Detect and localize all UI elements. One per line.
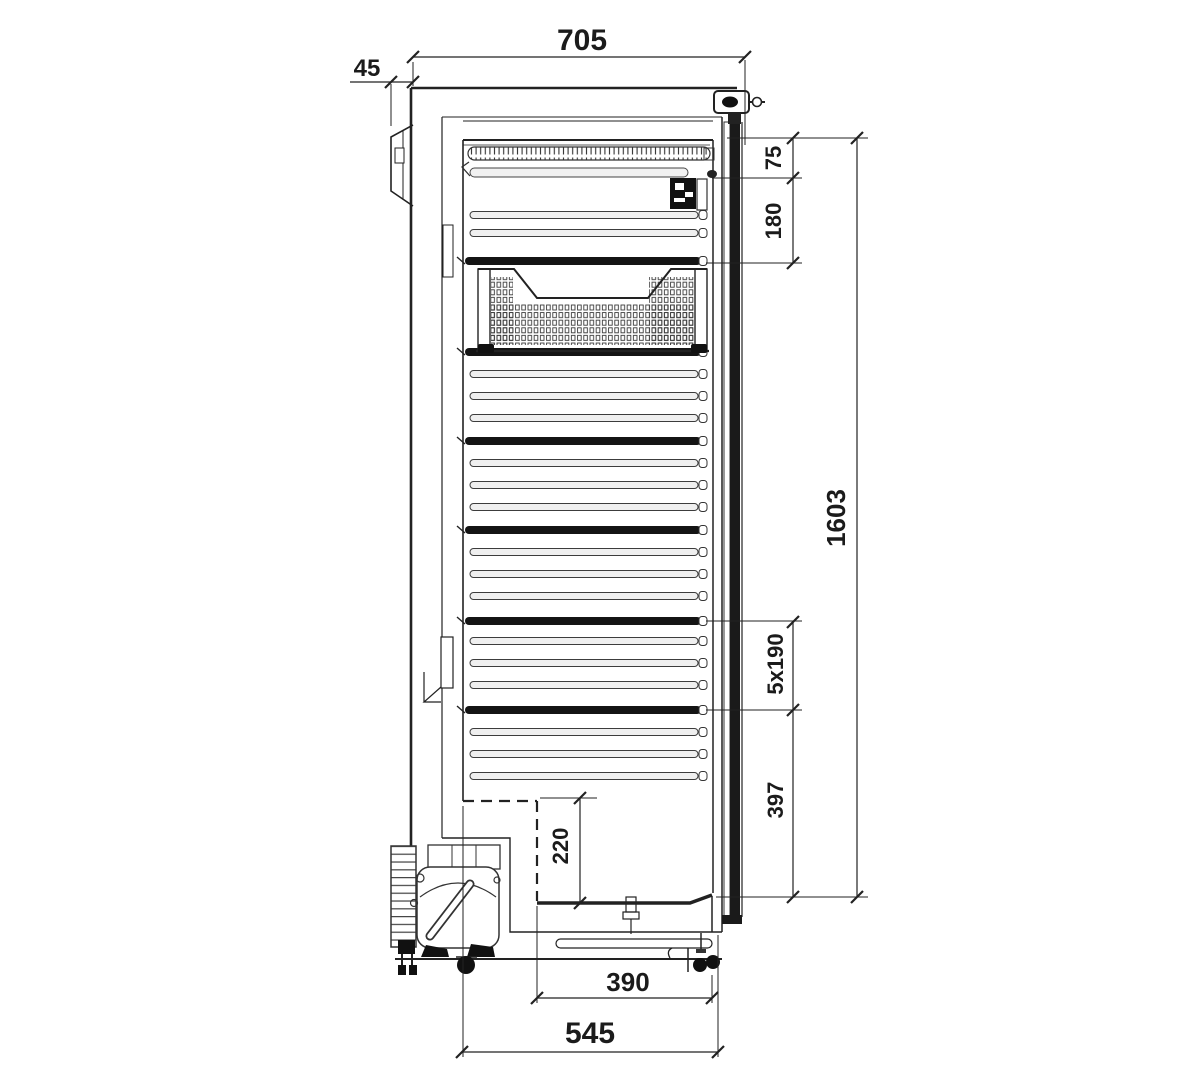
fan-unit xyxy=(670,178,707,210)
dim-label-shelf-pitch: 5x190 xyxy=(763,633,788,694)
shelf-rail xyxy=(470,638,698,645)
foot-pad-left xyxy=(693,958,707,972)
rail-hook xyxy=(699,570,707,579)
rail-hook xyxy=(699,503,707,512)
shelf-rail xyxy=(470,415,698,422)
shelf-rail xyxy=(470,660,698,667)
shelf-rail xyxy=(470,460,698,467)
dim-label-top-depth: 705 xyxy=(557,24,607,57)
dim-label-wall-spacer: 45 xyxy=(354,55,381,82)
door-gasket xyxy=(724,122,730,917)
shelf-rail-bold xyxy=(465,706,701,714)
fan-bracket xyxy=(697,179,707,210)
rail-hook xyxy=(699,437,707,446)
rail-hook xyxy=(699,211,707,220)
rail-hook xyxy=(699,706,707,715)
strip-end-pin xyxy=(707,170,717,178)
door xyxy=(722,108,742,924)
hinge-pin xyxy=(722,97,738,108)
rail-hook xyxy=(699,637,707,646)
rail-hook xyxy=(699,526,707,535)
shelf-rail xyxy=(470,393,698,400)
shelf-rail-bold xyxy=(465,437,701,445)
bottom-vent-slot xyxy=(556,939,712,948)
shelf-rail xyxy=(470,729,698,736)
shelf-rail xyxy=(470,593,698,600)
refrigerator-section-drawing: 705 45 75 180 1603 5x190 397 220 390 545 xyxy=(0,0,1200,1080)
door-bottom-cap xyxy=(722,915,742,924)
rail-hook xyxy=(699,481,707,490)
inner-top-line xyxy=(442,117,722,121)
rail-hook xyxy=(699,681,707,690)
top-rail xyxy=(462,162,688,177)
basket-foot-right xyxy=(691,344,707,353)
shelf-rail xyxy=(470,549,698,556)
condenser-coil xyxy=(391,846,416,947)
dim-label-lower-section: 397 xyxy=(763,782,788,819)
rail-hook xyxy=(699,459,707,468)
compressor-unit xyxy=(391,845,500,975)
shelf-rail xyxy=(470,212,698,219)
shelf-rail xyxy=(470,773,698,780)
dim-label-top-clearance: 75 xyxy=(761,146,786,170)
door-panel xyxy=(730,122,740,917)
rail-hook xyxy=(699,617,707,626)
rail-hook xyxy=(699,257,707,266)
rail-hook xyxy=(699,728,707,737)
rail-hook xyxy=(699,659,707,668)
shelf-rail xyxy=(470,482,698,489)
dim-label-base-depth: 545 xyxy=(565,1017,615,1050)
top-hinge xyxy=(714,91,765,113)
rail-hook xyxy=(699,229,707,238)
rail-hook xyxy=(699,414,707,423)
shelf-rail xyxy=(470,504,698,511)
rear-caster xyxy=(398,940,417,975)
dim-label-recess-depth: 390 xyxy=(606,967,649,997)
foot-hook xyxy=(668,948,672,958)
rail-hook xyxy=(699,392,707,401)
rail-hook xyxy=(699,750,707,759)
shelf-rail xyxy=(470,751,698,758)
fan-housing xyxy=(428,845,500,869)
rail-hook xyxy=(699,548,707,557)
front-inner-wall xyxy=(712,140,713,932)
drawing-canvas: 705 45 75 180 1603 5x190 397 220 390 545 xyxy=(0,0,1200,1080)
hinge-knob xyxy=(753,98,762,107)
interior-floor xyxy=(537,895,712,903)
rail-hook xyxy=(699,370,707,379)
dim-label-overall-height: 1603 xyxy=(821,489,851,547)
dim-label-first-shelf-offset: 180 xyxy=(761,203,786,240)
shelf-rail xyxy=(470,230,698,237)
shelf-rail xyxy=(470,682,698,689)
basket-foot-left xyxy=(478,344,494,353)
rail-hook xyxy=(699,772,707,781)
rail-hook xyxy=(699,592,707,601)
shelf-rail xyxy=(470,571,698,578)
shelf-rail xyxy=(470,371,698,378)
shelf-rail-bold xyxy=(465,526,701,534)
wire-basket xyxy=(476,269,709,353)
shelf-rail-bold xyxy=(465,617,701,625)
back-wall-mount-detail xyxy=(443,225,453,277)
basket-left-wall xyxy=(478,269,490,351)
dim-label-recess-height: 220 xyxy=(548,828,573,865)
basket-right-wall xyxy=(695,269,707,351)
shelf-rail-bold xyxy=(465,257,701,265)
wall-spacer-bracket-mid xyxy=(424,637,453,702)
